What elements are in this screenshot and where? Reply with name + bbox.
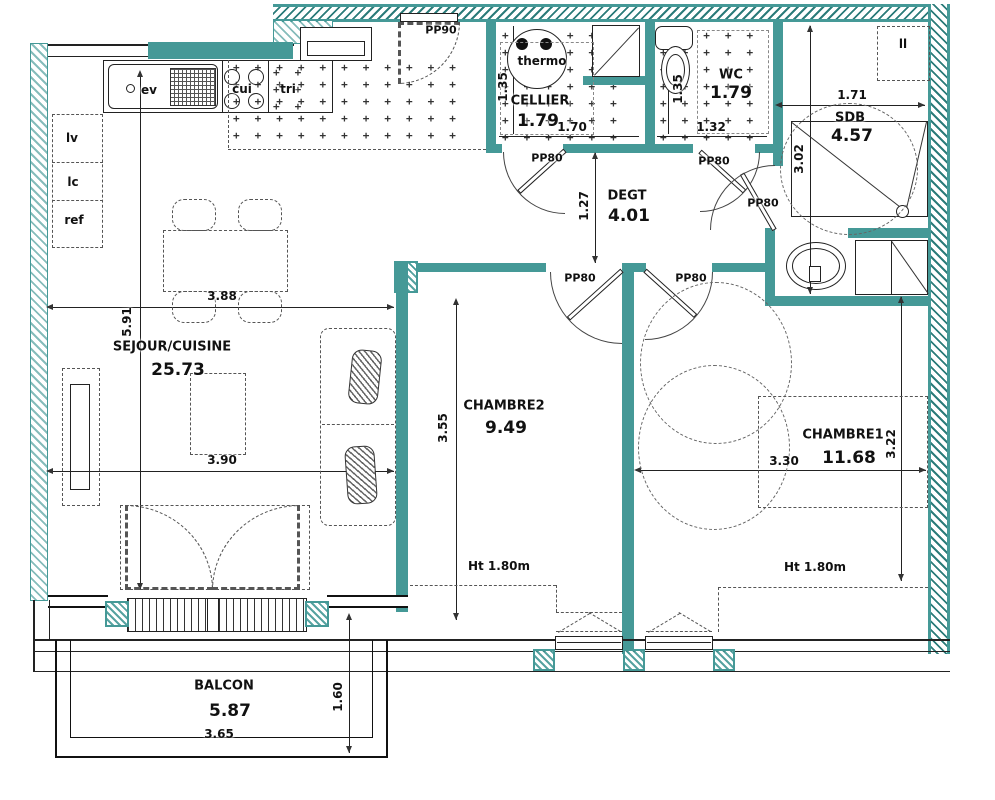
door-label-chambre1: PP80 — [675, 272, 706, 285]
sejour-bottom-wall — [48, 595, 108, 608]
exterior-wall-left — [30, 43, 48, 601]
entry-closet-inner — [307, 41, 365, 56]
dim-line — [456, 300, 457, 620]
sofa-cushion — [347, 349, 382, 406]
room-label-degt: DEGT — [608, 189, 647, 204]
washing-machine-slot — [877, 26, 930, 81]
room-label-wc: WC — [719, 68, 743, 83]
window-swing-line — [646, 631, 712, 632]
counter-divider — [222, 60, 223, 113]
door-label-sdb: PP80 — [747, 197, 778, 210]
dim-balcon-side: 1.60 — [331, 682, 345, 712]
room-area-wc: 1.79 — [710, 83, 752, 103]
washbasin-tap — [809, 266, 821, 282]
laundry-label: lc — [67, 175, 78, 189]
sejour-chambre2-wall — [396, 263, 408, 612]
dim-line — [50, 307, 394, 308]
left-wall-lower-line — [33, 600, 35, 672]
dim-wc-side: 1.35 — [671, 74, 685, 104]
washing-machine-label: ll — [899, 37, 907, 51]
dim-arrow — [346, 746, 352, 753]
window-swing-line — [556, 631, 622, 632]
sink-drainer — [170, 68, 216, 106]
dim-arrow — [592, 256, 598, 263]
cellier-left-wall — [486, 20, 496, 153]
dim-cellier-side: 1.35 — [496, 72, 510, 102]
window-pillar — [105, 601, 129, 627]
dim-line — [595, 153, 596, 263]
dim-sdb-side: 3.02 — [792, 144, 806, 174]
dim-sejour-top: 3.88 — [207, 289, 237, 303]
hall-wall-segment — [486, 144, 502, 153]
height-label-chambre1: Ht 1.80m — [784, 560, 846, 574]
tile-boundary — [228, 60, 229, 148]
height-limit-line — [410, 585, 556, 586]
dim-line — [657, 136, 767, 137]
dining-table — [163, 230, 288, 292]
tile-boundary — [228, 149, 486, 150]
dim-arrow — [387, 304, 394, 310]
room-area-sejour: 25.73 — [151, 360, 205, 380]
door-label-wc: PP80 — [698, 155, 729, 168]
dim-arrow — [46, 304, 53, 310]
cooktop-label: cui — [232, 82, 252, 96]
room-label-sdb: SDB — [835, 111, 865, 126]
hall-wall-segment — [563, 144, 693, 153]
room-label-sejour: SEJOUR/CUISINE — [113, 340, 231, 355]
dim-chambre1-side: 3.22 — [884, 429, 898, 459]
exterior-wall-top — [273, 4, 950, 22]
exterior-wall-right — [928, 4, 950, 654]
dim-chambre2-side: 3.55 — [436, 413, 450, 443]
entry-door-leaf — [400, 13, 458, 22]
chambre1-window — [645, 636, 713, 650]
dim-line — [499, 136, 639, 137]
dim-degt-side: 1.27 — [577, 191, 591, 221]
chambre2-top-wall — [396, 263, 546, 272]
dim-arrow — [453, 613, 459, 620]
counter-divider — [268, 60, 269, 113]
door-label-entry: PP90 — [425, 24, 456, 37]
window-swing-line — [678, 612, 710, 632]
dim-arrow — [898, 574, 904, 581]
sofa-cushion — [344, 445, 378, 505]
dim-arrow — [898, 296, 904, 303]
appliance-divider — [52, 162, 103, 163]
dim-arrow — [807, 25, 813, 32]
sofa-divider — [322, 424, 394, 425]
dim-sejour-mid: 3.90 — [207, 453, 237, 467]
chambre2-window — [555, 636, 623, 650]
floor-plan: ++++++++++++++++++++++++++++++++++++++++… — [0, 0, 995, 800]
faucet-icon — [126, 84, 135, 93]
dim-line — [349, 615, 350, 753]
chambre1-top-wall — [712, 263, 774, 272]
room-area-balcon: 5.87 — [209, 701, 251, 721]
room-label-chambre1: CHAMBRE1 — [802, 428, 883, 443]
dim-arrow — [775, 102, 782, 108]
balcony-door-mullion — [207, 598, 219, 632]
window-pillar — [713, 649, 735, 671]
worktop-label: tri — [280, 82, 296, 96]
door-label-cellier: PP80 — [531, 152, 562, 165]
water-heater-label: thermo — [517, 54, 566, 68]
cellier-wc-wall — [645, 20, 655, 153]
room-area-chambre2: 9.49 — [485, 418, 527, 438]
height-limit-line — [556, 585, 557, 612]
chair — [238, 199, 282, 231]
kitchen-top-wall-line — [48, 56, 148, 57]
left-wall-lower-line — [49, 600, 50, 640]
window-glass-line — [557, 642, 621, 643]
dim-arrow — [592, 152, 598, 159]
sink-label: ev — [141, 83, 157, 97]
dim-arrow — [453, 298, 459, 305]
window-pillar — [623, 649, 645, 671]
window-swing-line — [648, 613, 680, 633]
door-label-chambre2: PP80 — [564, 272, 595, 285]
kitchen-top-wall — [148, 42, 293, 59]
window-glass-line — [647, 642, 711, 643]
room-label-balcon: BALCON — [194, 679, 254, 694]
dim-sejour-side: 5.91 — [120, 307, 134, 337]
window-pillar — [305, 601, 329, 627]
dim-arrow — [918, 102, 925, 108]
dim-arrow — [346, 613, 352, 620]
room-area-cellier: 1.79 — [517, 111, 559, 131]
dim-arrow — [46, 468, 53, 474]
dishwasher-label: lv — [66, 131, 78, 145]
low-cabinet — [190, 373, 246, 455]
room-area-chambre1: 11.68 — [822, 448, 876, 468]
chair — [238, 291, 282, 323]
window-swing-line — [588, 612, 620, 632]
room-area-degt: 4.01 — [608, 206, 650, 226]
room-label-chambre2: CHAMBRE2 — [463, 399, 544, 414]
dim-balcon-bottom: 3.65 — [204, 727, 234, 741]
room-label-cellier: CELLIER — [511, 94, 570, 109]
chair — [172, 199, 216, 231]
dim-sdb-top: 1.71 — [837, 88, 867, 102]
dim-chambre1-bottom: 3.30 — [769, 454, 799, 468]
appliance-divider — [52, 200, 103, 201]
sejour-bottom-wall — [327, 595, 408, 608]
chambre-divider-wall — [622, 263, 634, 654]
room-area-sdb: 4.57 — [831, 126, 873, 146]
dim-wc-bottom: 1.32 — [696, 120, 726, 134]
height-label-chambre2: Ht 1.80m — [468, 559, 530, 573]
window-swing-line — [558, 613, 590, 633]
window-pillar — [533, 649, 555, 671]
height-limit-line — [718, 587, 928, 588]
duct-divider — [891, 240, 892, 295]
dim-cellier-bottom: 1.70 — [557, 120, 587, 134]
fridge-label: ref — [64, 213, 83, 227]
height-limit-line — [718, 587, 719, 632]
tv-cabinet-inner — [70, 384, 90, 490]
